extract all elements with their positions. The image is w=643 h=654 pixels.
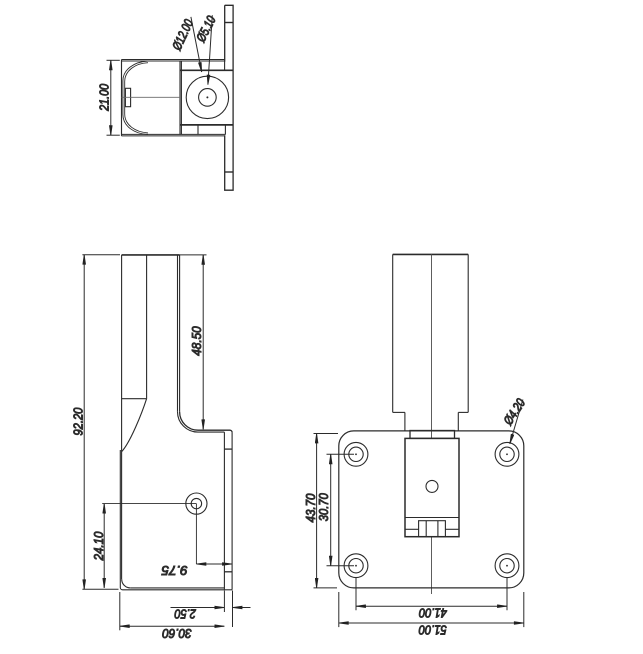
svg-text:30.60: 30.60: [162, 626, 192, 641]
svg-text:43.70: 43.70: [303, 493, 318, 523]
svg-text:51.00: 51.00: [418, 622, 447, 637]
svg-text:Ø5.10: Ø5.10: [193, 13, 219, 45]
svg-text:21.00: 21.00: [97, 83, 112, 111]
svg-text:2.50: 2.50: [174, 606, 197, 621]
svg-text:48.50: 48.50: [189, 326, 204, 356]
svg-text:92.20: 92.20: [71, 407, 86, 436]
svg-text:Ø4.20: Ø4.20: [500, 395, 529, 428]
svg-text:Ø12.00: Ø12.00: [169, 17, 197, 54]
svg-text:9.75: 9.75: [161, 563, 188, 578]
svg-text:30.70: 30.70: [316, 493, 331, 522]
svg-text:41.00: 41.00: [418, 606, 447, 621]
svg-text:24.10: 24.10: [91, 531, 106, 561]
